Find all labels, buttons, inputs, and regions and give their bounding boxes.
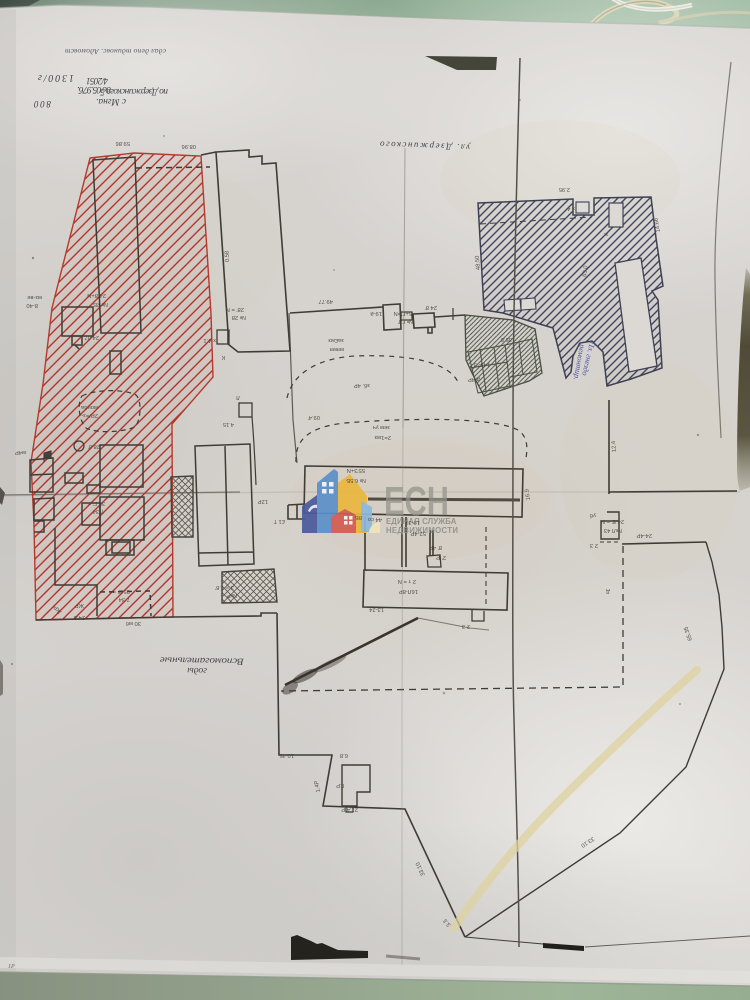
svg-text:2' Р: 2' Р bbox=[436, 554, 446, 560]
svg-text:0.58: 0.58 bbox=[224, 251, 231, 263]
svg-text:28' = N: 28' = N bbox=[226, 306, 244, 312]
svg-text:зем уч: зем уч bbox=[373, 424, 390, 430]
svg-text:£1 Т: £1 Т bbox=[273, 518, 285, 524]
svg-text:24.07: 24.07 bbox=[84, 334, 99, 340]
svg-text:12.4: 12.4 bbox=[611, 440, 618, 453]
svg-text:№Р: №Р bbox=[227, 592, 237, 598]
svg-text:8' 4Р: 8' 4Р bbox=[429, 544, 442, 550]
svg-text:55'3+N: 55'3+N bbox=[347, 467, 365, 473]
svg-text:Вспомогательные: Вспомогательные bbox=[160, 654, 244, 665]
svg-text:19-37: 19-37 bbox=[405, 519, 420, 525]
svg-text:ЖР: ЖР bbox=[75, 602, 84, 608]
svg-text:годы: годы bbox=[187, 665, 207, 676]
svg-text:8Б: 8Б bbox=[355, 514, 362, 520]
svg-text:2Р/=з-: 2Р/=з- bbox=[81, 412, 98, 418]
svg-text:59.86: 59.86 bbox=[115, 140, 130, 146]
svg-text:24.8+N: 24.8+N bbox=[87, 292, 106, 298]
svg-text:х 4: х 4 bbox=[566, 205, 575, 211]
svg-text:14 Р'З: 14 Р'З bbox=[473, 361, 490, 367]
svg-text:ЕДИНАЯ СЛУЖБА: ЕДИНАЯ СЛУЖБА bbox=[386, 517, 457, 526]
svg-text:10.45: 10.45 bbox=[279, 752, 294, 758]
svg-text:28.8': 28.8' bbox=[88, 443, 100, 449]
svg-text:7 34: 7 34 bbox=[92, 508, 104, 514]
svg-text:13-24: 13-24 bbox=[368, 606, 384, 612]
svg-text:16Л-8Р: 16Л-8Р bbox=[399, 588, 418, 594]
svg-text:35.8: 35.8 bbox=[501, 336, 512, 342]
svg-text:05.3' =: 05.3' = bbox=[112, 588, 130, 594]
svg-text:21.4 Р: 21.4 Р bbox=[341, 806, 358, 812]
svg-text:уб: уб bbox=[589, 512, 596, 518]
svg-text:8-40: 8-40 bbox=[26, 302, 38, 308]
svg-text:30 мб: 30 мб bbox=[125, 620, 141, 626]
svg-text:№ 2Б: № 2Б bbox=[93, 301, 108, 307]
svg-text:монба: монба bbox=[80, 404, 98, 410]
svg-text:2 3: 2 3 bbox=[462, 623, 470, 629]
svg-text:24.8' = N: 24.8' = N bbox=[601, 518, 624, 524]
svg-text:2 т = N: 2 т = N bbox=[398, 578, 416, 584]
svg-text:мз-ве: мз-ве bbox=[27, 294, 42, 300]
svg-text:5+Г'=N: 5+Г'=N bbox=[394, 310, 412, 316]
svg-text:№ 28: № 28 bbox=[232, 314, 246, 320]
svg-text:800: 800 bbox=[34, 99, 52, 109]
svg-text:№Л 43: №Л 43 bbox=[604, 527, 622, 533]
svg-text:09.4': 09.4' bbox=[308, 414, 320, 420]
svg-text:12Р: 12Р bbox=[258, 498, 268, 504]
svg-text:24 8': 24 8' bbox=[425, 304, 437, 310]
svg-text:48.50: 48.50 bbox=[475, 255, 482, 270]
svg-text:с Мгна.: с Мгна. bbox=[96, 96, 126, 106]
svg-text:35 Г' =: 35 Г' = bbox=[87, 500, 105, 506]
svg-text:1Р: 1Р bbox=[8, 964, 15, 970]
svg-text:№ Г8': № Г8' bbox=[398, 318, 413, 324]
svg-text:24.8': 24.8' bbox=[73, 614, 85, 620]
svg-text:3 × 7.8': 3 × 7.8' bbox=[215, 584, 234, 590]
svg-text:мямя: мямя bbox=[330, 346, 344, 352]
svg-text:по Дзержинского 5: по Дзержинского 5 bbox=[100, 86, 168, 96]
svg-text:Л: Л bbox=[236, 394, 240, 400]
svg-text:08.96: 08.96 bbox=[181, 143, 196, 149]
svg-text:7 34: 7 34 bbox=[118, 596, 130, 602]
svg-text:2=1мз: 2=1мз bbox=[374, 434, 391, 440]
svg-text:х 4.1: х 4.1 bbox=[203, 337, 216, 343]
svg-text:№ 6.5Б: № 6.5Б bbox=[346, 477, 366, 483]
svg-text:Д: Д bbox=[606, 588, 610, 594]
svg-text:Г.Р: Г.Р bbox=[336, 782, 344, 788]
svg-text:6.8: 6.8 bbox=[340, 752, 348, 758]
svg-text:44 со: 44 со bbox=[368, 516, 382, 522]
svg-text:д 4Р: д 4Р bbox=[468, 376, 480, 382]
svg-text:49.77: 49.77 bbox=[318, 298, 333, 304]
svg-text:4.15: 4.15 bbox=[223, 421, 234, 427]
svg-text:ж: ж bbox=[604, 231, 608, 237]
svg-text:24-4Р: 24-4Р bbox=[636, 532, 652, 538]
svg-text:зб. 4Р: зб. 4Р bbox=[354, 382, 370, 388]
svg-text:2 3: 2 3 bbox=[590, 542, 598, 548]
svg-text:за£мз: за£мз bbox=[328, 337, 344, 343]
svg-text:сдал депо тдиновс. Адомовст: сдал депо тдиновс. Адомовст bbox=[64, 47, 166, 56]
svg-text:19-й: 19-й bbox=[370, 310, 382, 317]
svg-text:52-4Р: 52-4Р bbox=[410, 530, 426, 536]
svg-text:м4Р: м4Р bbox=[15, 449, 26, 455]
svg-text:2.95: 2.95 bbox=[559, 186, 570, 192]
